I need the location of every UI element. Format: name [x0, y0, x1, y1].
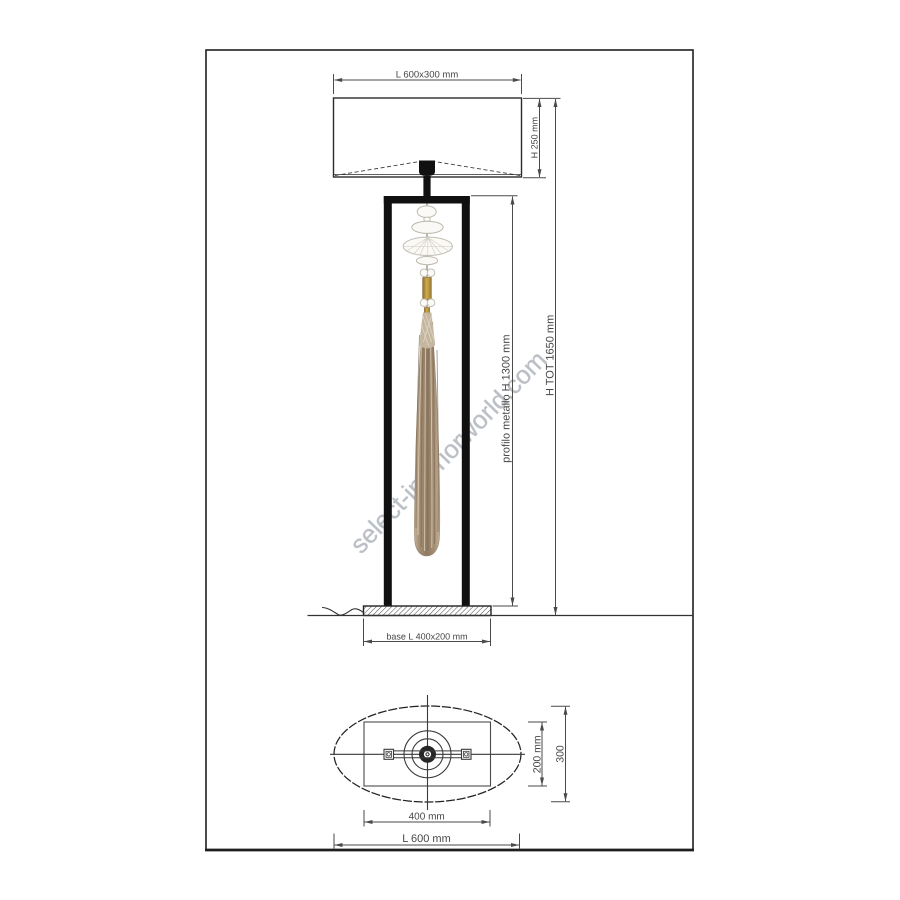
svg-text:L 600 mm: L 600 mm: [402, 833, 451, 845]
svg-text:H 250 mm: H 250 mm: [529, 117, 539, 159]
svg-text:profilo metallo H 1300 mm: profilo metallo H 1300 mm: [501, 335, 513, 463]
svg-text:300: 300: [554, 745, 566, 763]
svg-text:L 600x300 mm: L 600x300 mm: [396, 70, 459, 81]
svg-text:H TOT 1650 mm: H TOT 1650 mm: [544, 315, 556, 396]
svg-text:200 mm: 200 mm: [532, 735, 544, 773]
svg-text:base L 400x200 mm: base L 400x200 mm: [386, 632, 467, 642]
svg-text:400 mm: 400 mm: [409, 812, 445, 823]
